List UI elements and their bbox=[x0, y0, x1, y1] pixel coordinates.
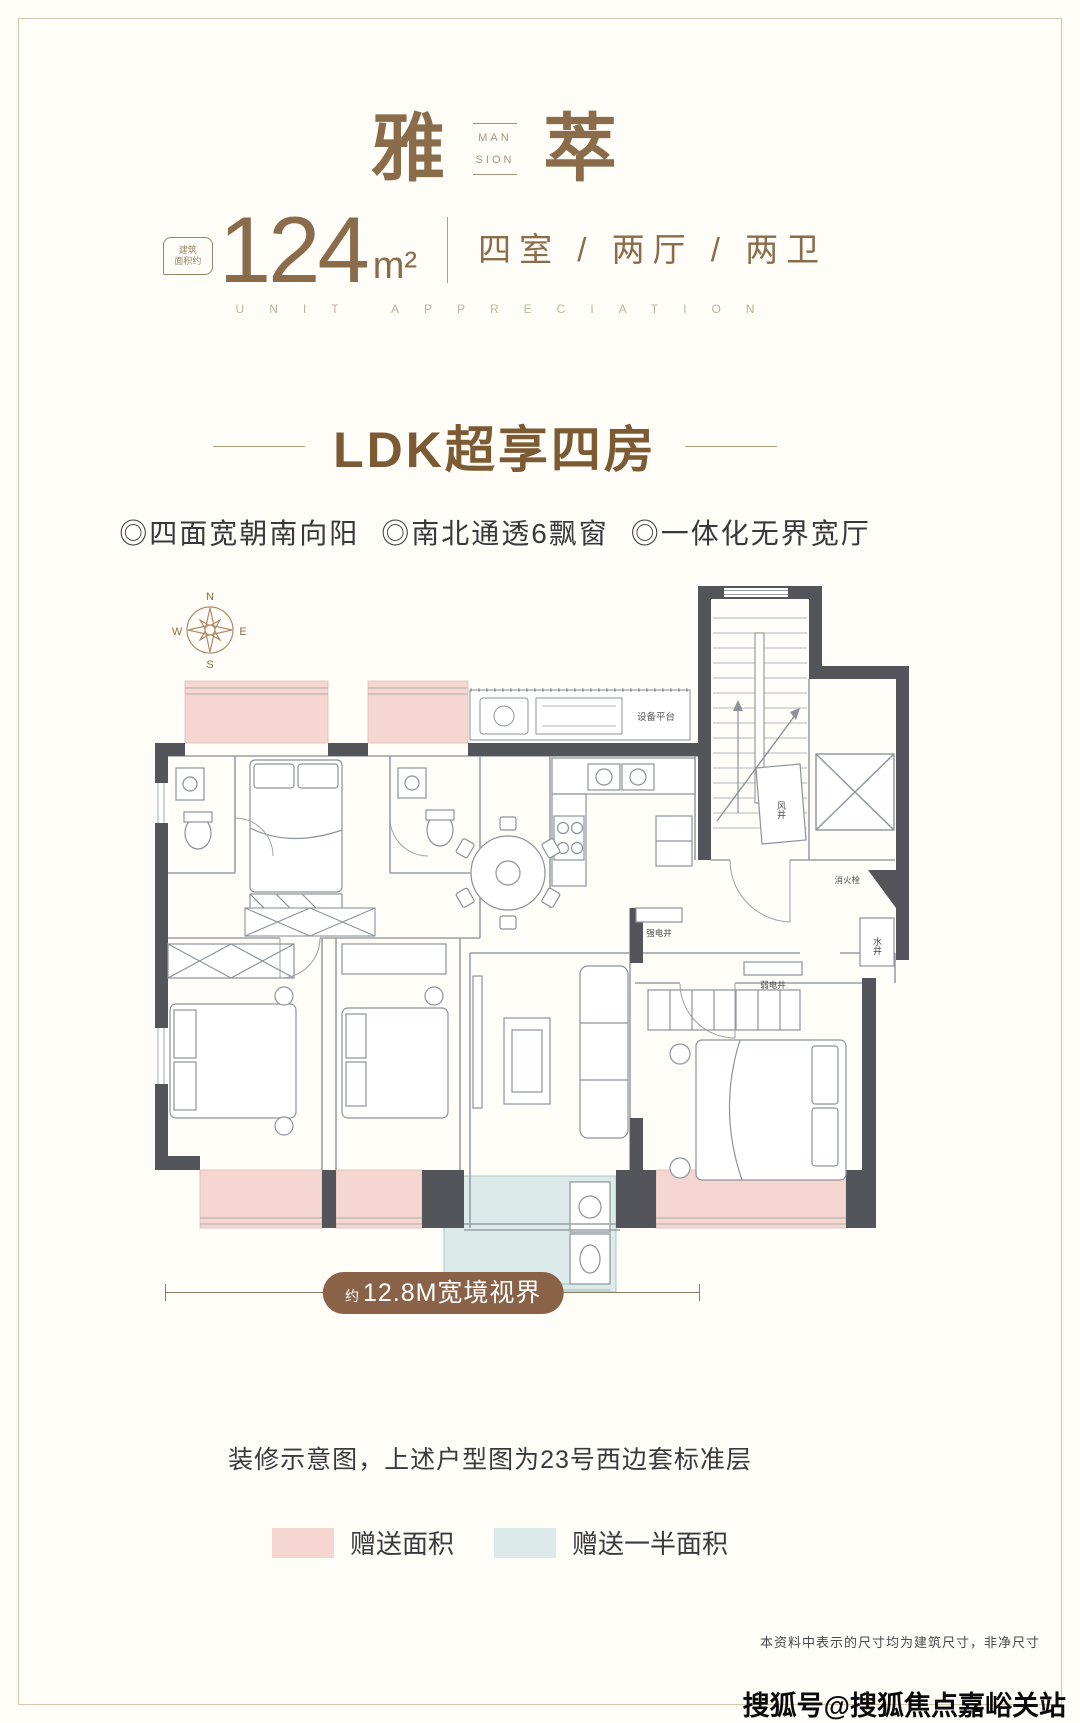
border-frame bbox=[18, 18, 1062, 1705]
poster-page: 雅 MAN SION 萃 建筑 面积约 124 m² 四室 / 两厅 / 两卫 … bbox=[0, 0, 1080, 1723]
watermark-text: 搜狐号@搜狐焦点嘉峪关站 bbox=[743, 1684, 1066, 1723]
